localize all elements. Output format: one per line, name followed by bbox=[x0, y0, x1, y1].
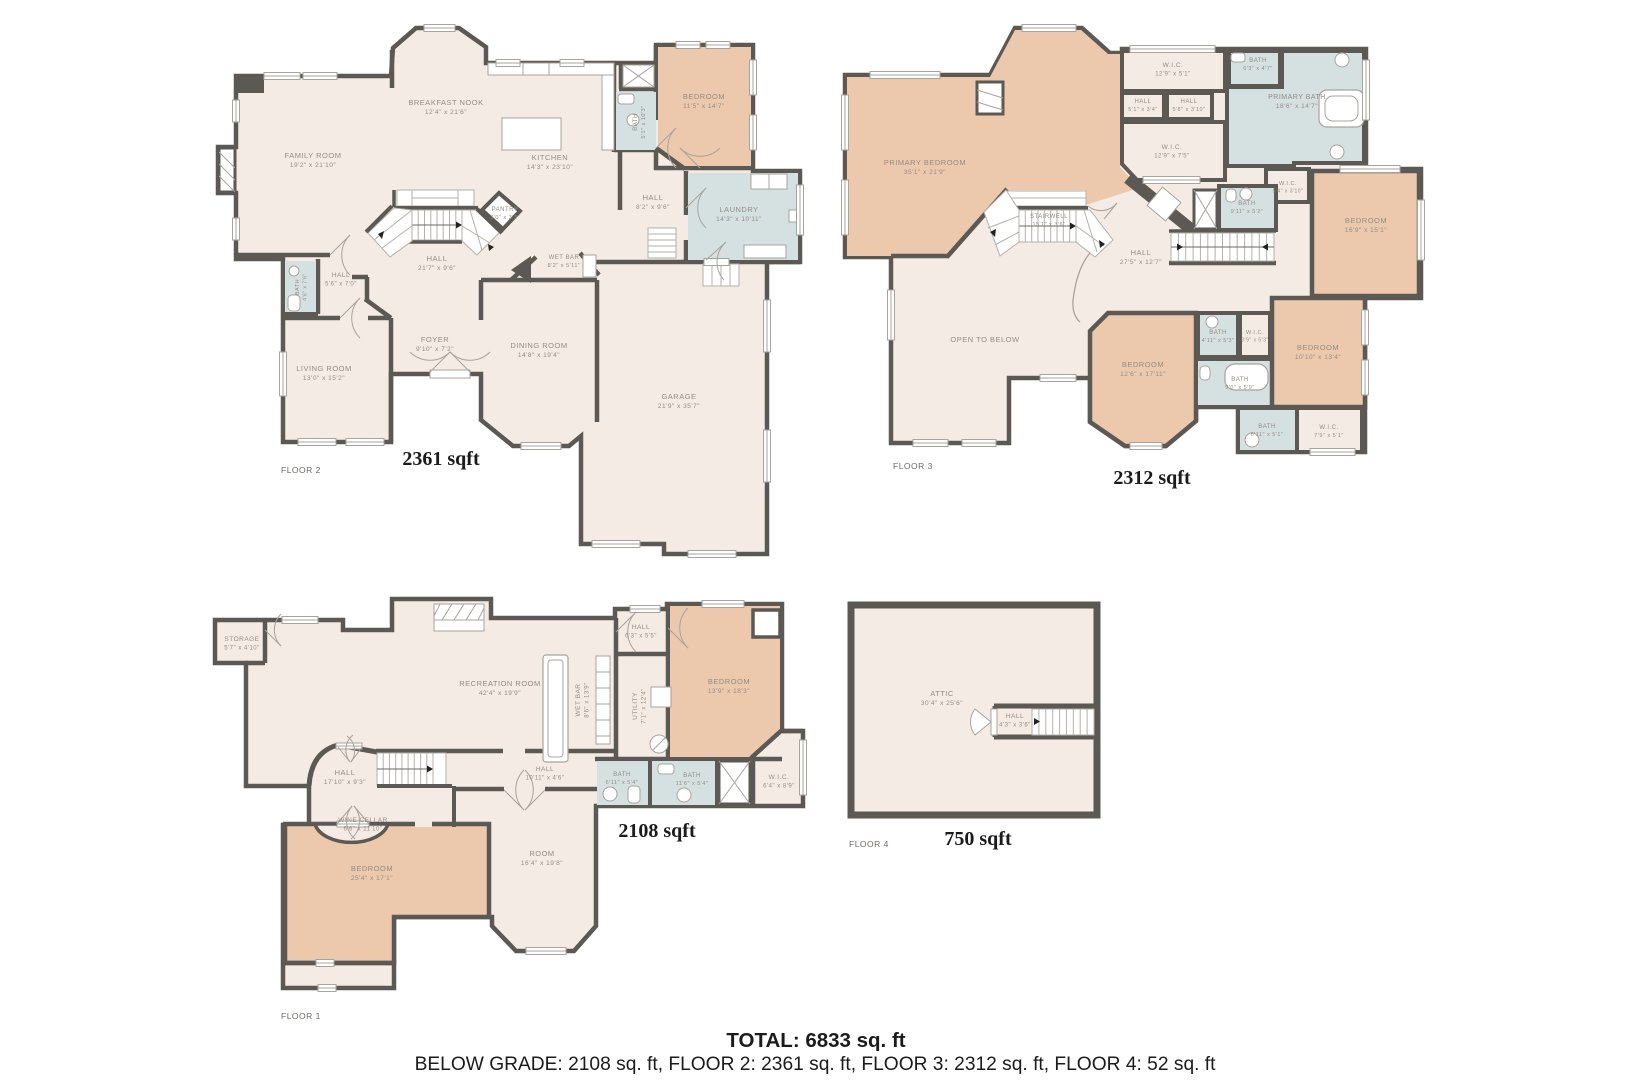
svg-text:FLOOR 3: FLOOR 3 bbox=[893, 461, 933, 471]
svg-text:FLOOR 4: FLOOR 4 bbox=[849, 839, 889, 849]
svg-text:2108 sqft: 2108 sqft bbox=[618, 820, 696, 842]
svg-text:2361 sqft: 2361 sqft bbox=[402, 448, 480, 470]
svg-text:750 sqft: 750 sqft bbox=[944, 828, 1012, 850]
svg-text:OPEN TO BELOW: OPEN TO BELOW bbox=[950, 335, 1020, 344]
svg-text:FLOOR 1: FLOOR 1 bbox=[281, 1011, 321, 1021]
svg-text:2312 sqft: 2312 sqft bbox=[1113, 467, 1191, 489]
svg-text:FLOOR 2: FLOOR 2 bbox=[281, 465, 321, 475]
svg-text:TOTAL: 6833 sq. ft: TOTAL: 6833 sq. ft bbox=[726, 1029, 905, 1052]
svg-text:BELOW GRADE: 2108 sq. ft, FLOO: BELOW GRADE: 2108 sq. ft, FLOOR 2: 2361 … bbox=[415, 1054, 1217, 1075]
